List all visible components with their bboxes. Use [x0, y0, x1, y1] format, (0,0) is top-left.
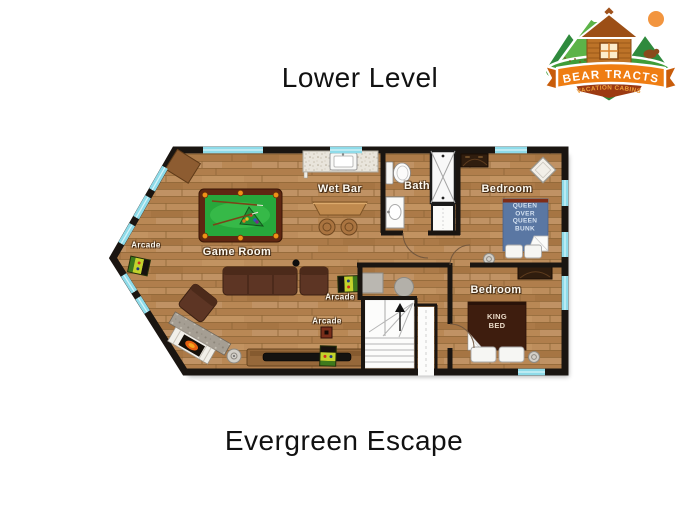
- room-label-bedroom-lower: Bedroom: [470, 284, 521, 296]
- label-king-bed: KING BED: [482, 313, 512, 331]
- side-table-round: [395, 278, 414, 297]
- room-label-wet-bar: Wet Bar: [318, 183, 362, 195]
- shower: [431, 151, 455, 203]
- side-table-square: [362, 273, 383, 293]
- pool-table: [199, 189, 282, 242]
- linen-closet: [432, 205, 454, 232]
- exterior-door: [418, 307, 434, 376]
- room-label-game-room: Game Room: [203, 246, 271, 258]
- game-table-small: [321, 327, 332, 338]
- stairs: [365, 300, 414, 368]
- label-arcade-mid: Arcade: [325, 293, 355, 302]
- room-label-bedroom-upper: Bedroom: [481, 183, 532, 195]
- property-title: Evergreen Escape: [225, 425, 463, 457]
- speaker: [529, 352, 540, 363]
- cabin-icon: [579, 6, 639, 68]
- arcade-machine: [128, 256, 151, 276]
- sofa-small: [300, 267, 328, 295]
- page: Lower Level: [0, 0, 683, 512]
- sun-icon: [648, 11, 664, 27]
- arcade-machine: [320, 346, 337, 367]
- side-table-dot: [292, 259, 299, 266]
- label-arcade-low: Arcade: [312, 317, 342, 326]
- label-bunk-bed: QUEEN OVER QUEEN BUNK: [505, 203, 545, 234]
- arcade-machine: [338, 276, 359, 293]
- label-arcade-tip: Arcade: [131, 241, 161, 250]
- dresser: [461, 154, 488, 167]
- dresser: [518, 267, 552, 279]
- sofa-long: [223, 267, 297, 295]
- speaker: [227, 349, 241, 363]
- bear-tracts-logo: VACATION CABINS BEAR TRACTS: [543, 2, 679, 104]
- tv-console: [247, 349, 368, 366]
- bath-vanity: [386, 197, 404, 228]
- room-label-bath: Bath: [404, 180, 430, 192]
